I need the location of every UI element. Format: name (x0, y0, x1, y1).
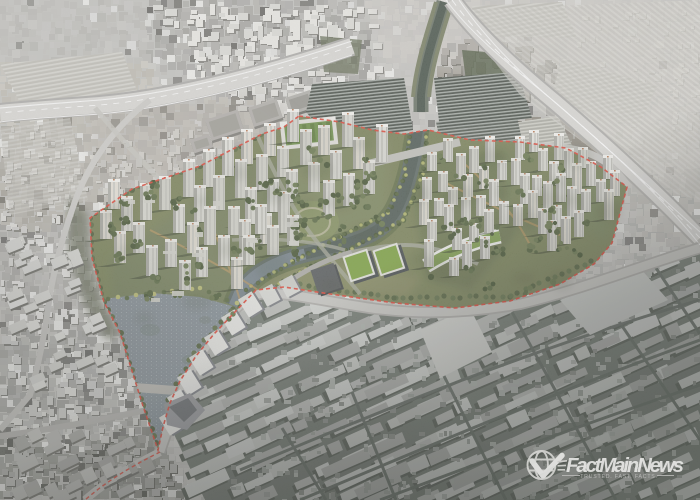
svg-text:TRUSTED. FAST. FACTS.: TRUSTED. FAST. FACTS. (580, 474, 658, 480)
